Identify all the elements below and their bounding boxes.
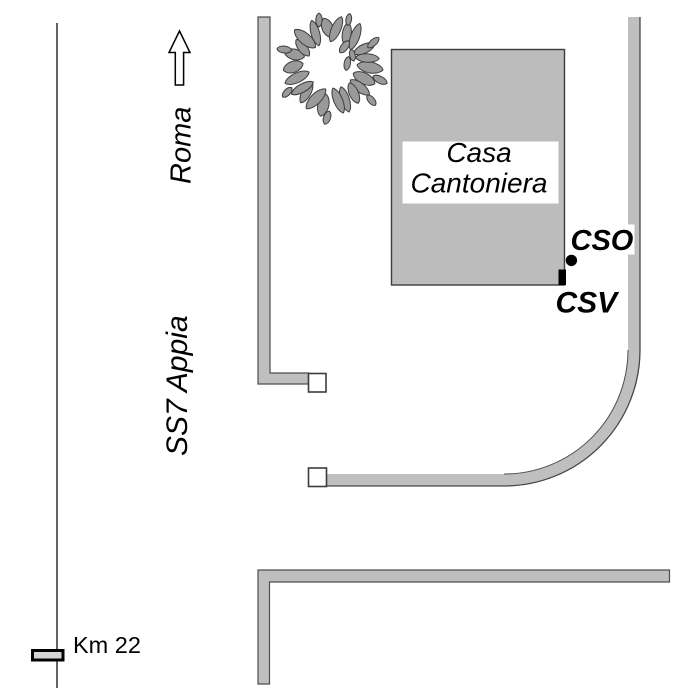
svg-text:CSV: CSV — [556, 287, 621, 320]
svg-text:Roma: Roma — [166, 107, 198, 184]
svg-text:Km 22: Km 22 — [73, 632, 141, 658]
svg-text:CSO: CSO — [571, 225, 634, 257]
svg-text:Casa: Casa — [446, 137, 511, 168]
svg-text:Cantoniera: Cantoniera — [411, 168, 548, 199]
svg-text:SS7 Appia: SS7 Appia — [161, 315, 194, 456]
